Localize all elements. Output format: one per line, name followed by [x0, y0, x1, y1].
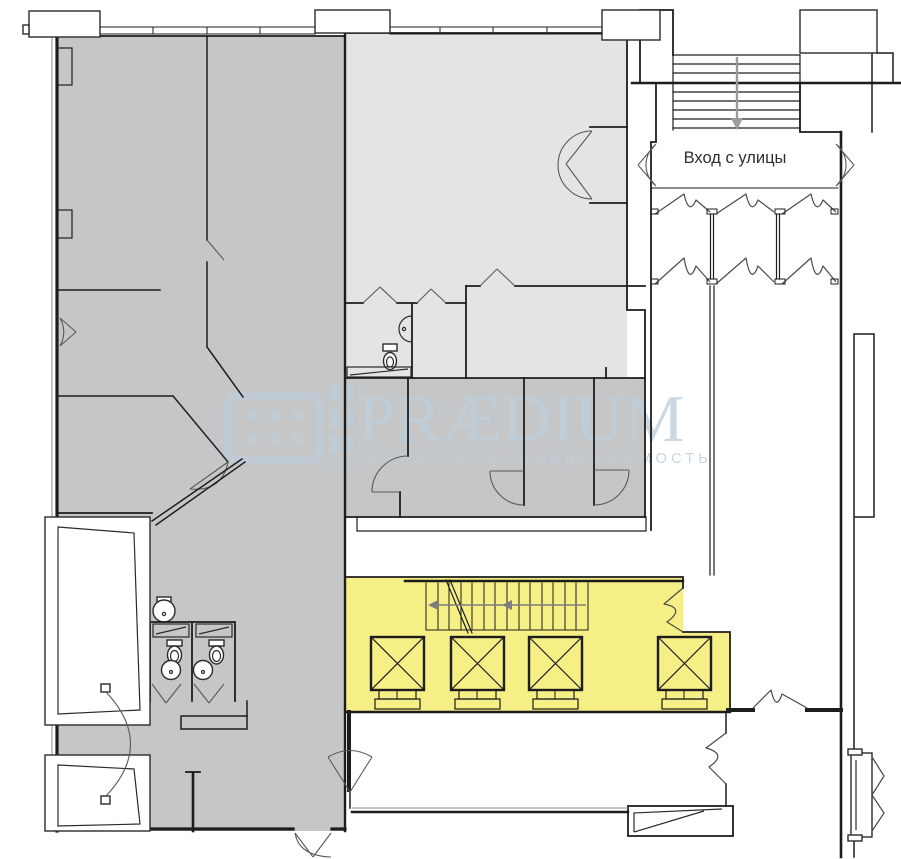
left-shaft-boxes [45, 517, 150, 831]
ramp-detail [634, 809, 722, 832]
window-bay [800, 10, 877, 53]
toilet-icon [209, 640, 224, 664]
door-swing-icon [638, 144, 656, 186]
glass-door-rows [651, 194, 838, 284]
window-bay [602, 10, 660, 40]
shaft-box-lower [45, 755, 150, 831]
elevator-hall-highlight [345, 632, 730, 712]
street-entrance: Вход с улицы [638, 55, 854, 284]
floor-plan-canvas: PRÆDIUM КОММЕРЧЕСКАЯ НЕДВИЖИМОСТЬ [0, 0, 901, 859]
double-door-zigzag-horizontal [753, 690, 807, 708]
exit-door-icon [295, 833, 331, 857]
street-entrance-label: Вход с улицы [684, 149, 787, 167]
lower-corridor [349, 712, 628, 812]
room-light-gray-area [345, 33, 627, 378]
watermark-brand-text: PRÆDIUM [358, 382, 685, 456]
mullion-caps [651, 209, 838, 284]
window-bay [29, 11, 100, 37]
window-bay [315, 10, 390, 33]
door-swing-icon [836, 144, 854, 186]
floor-plan-svg: PRÆDIUM КОММЕРЧЕСКАЯ НЕДВИЖИМОСТЬ [0, 0, 901, 859]
watermark-tagline-text: КОММЕРЧЕСКАЯ НЕДВИЖИМОСТЬ [356, 451, 712, 467]
double-door-zigzag-vertical [706, 733, 726, 784]
right-window-bay [848, 749, 884, 841]
